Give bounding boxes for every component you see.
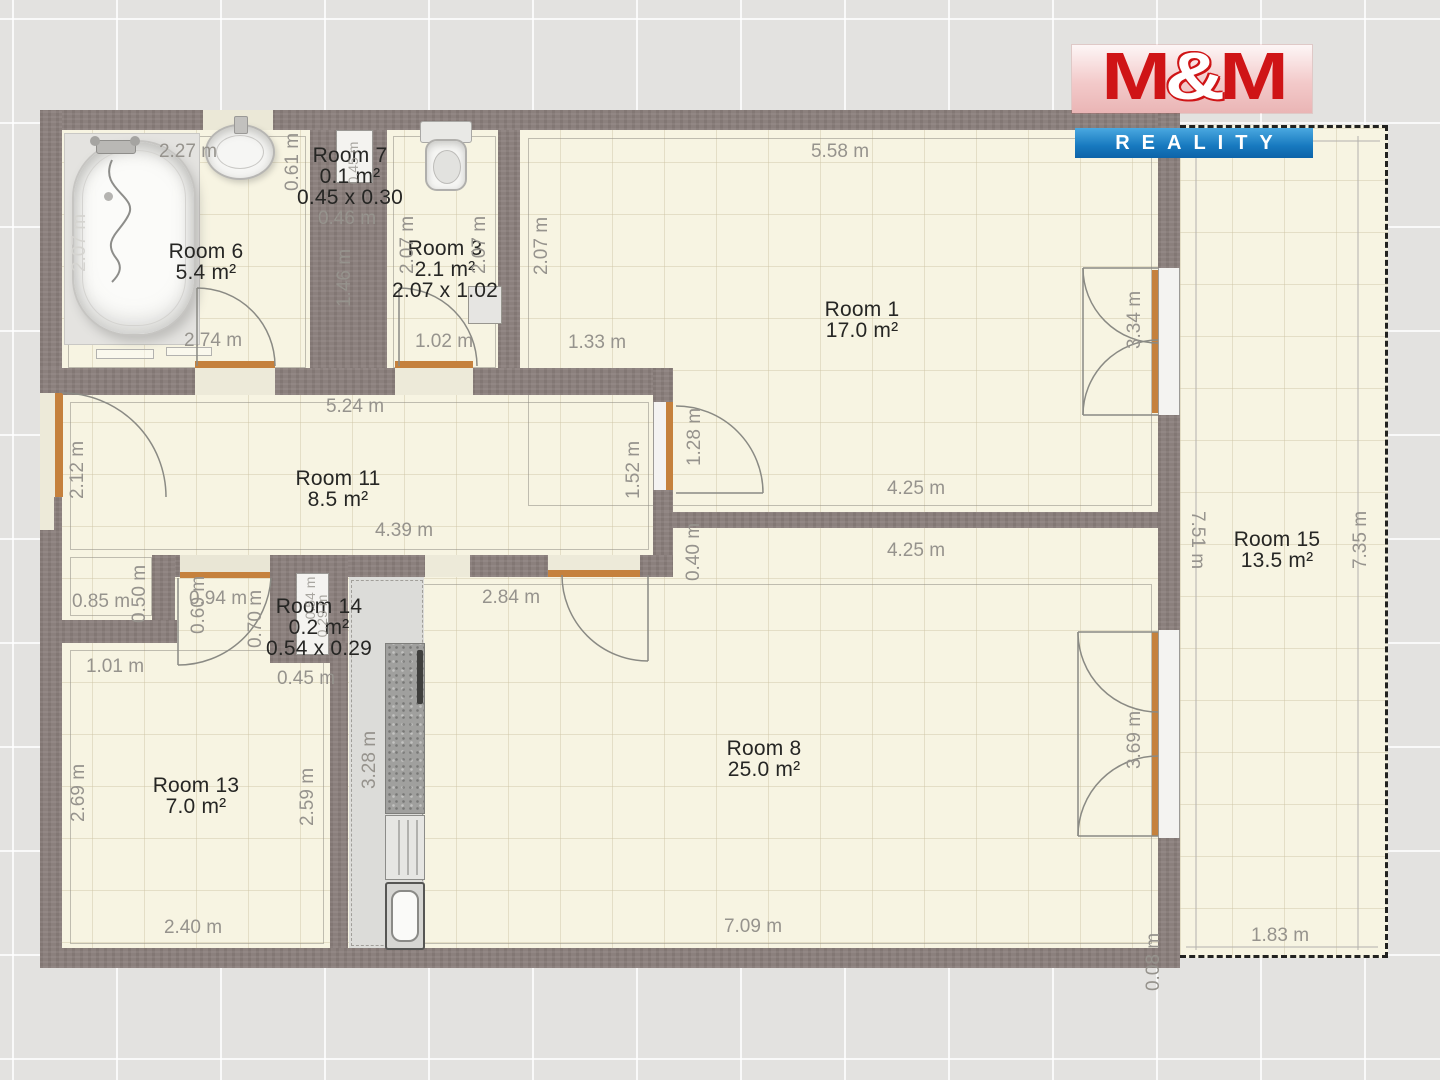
room-15-label: 13.5 m² — [1241, 549, 1314, 573]
dimension-label: 3.34 m — [1124, 291, 1146, 349]
dimension-label: 7.35 m — [1350, 511, 1372, 569]
dimension-label: 2.84 m — [482, 587, 540, 609]
dimension-label: 2.59 m — [297, 768, 319, 826]
dimension-label: 2.74 m — [184, 330, 242, 352]
room-14-label: 0.54 x 0.29 — [266, 637, 372, 661]
dimension-label: 1.46 m — [334, 249, 356, 307]
dimension-label: 0.61 m — [282, 133, 304, 191]
dimension-label: 2.07 m — [469, 216, 491, 274]
room-1-label: 17.0 m² — [826, 319, 899, 343]
room-13-label: 7.0 m² — [166, 795, 227, 819]
dimension-label: 0.60 m — [188, 576, 210, 634]
logo-m-left: M — [1101, 45, 1165, 113]
dimension-label: 2.12 m — [67, 441, 89, 499]
dimension-label: 1.28 m — [684, 408, 706, 466]
floor-plan: Room 65.4 m²Room 70.1 m²0.45 x 0.30Room … — [0, 0, 1440, 1080]
dimension-label: 1.83 m — [1251, 925, 1309, 947]
dimension-label: 0.70 m — [245, 590, 267, 648]
dimension-label: 2.07 m — [69, 214, 91, 272]
dimension-label: 5.24 m — [326, 396, 384, 418]
room-11-label: 8.5 m² — [308, 488, 369, 512]
dimension-label: 4.25 m — [887, 540, 945, 562]
dimension-label: 7.09 m — [724, 916, 782, 938]
dimension-label: 0.45 m — [277, 668, 335, 690]
shower-hose — [109, 160, 130, 282]
room-7-label: 0.45 x 0.30 — [297, 186, 403, 210]
dimension-label: 1.02 m — [415, 331, 473, 353]
dimension-label: 2.27 m — [159, 141, 217, 163]
dimension-label: 2.07 m — [397, 216, 419, 274]
dimension-label: 0.85 m — [72, 591, 130, 613]
dimension-label: 0.46 m — [318, 208, 376, 230]
dimension-label: 0.45 m — [345, 142, 361, 185]
dimension-label: 0.50 m — [129, 565, 151, 623]
dimension-label: 5.58 m — [811, 141, 869, 163]
dimension-label: 0.40 m — [683, 523, 705, 581]
dimension-label: 2.69 m — [68, 764, 90, 822]
dimension-label: 0.29 m — [314, 595, 330, 638]
room-6-label: 5.4 m² — [176, 261, 237, 285]
dimension-label: 3.69 m — [1124, 711, 1146, 769]
dimension-label: 3.28 m — [359, 731, 381, 789]
dimension-label: 2.40 m — [164, 917, 222, 939]
dimension-label: 2.07 m — [531, 217, 553, 275]
room-8-label: 25.0 m² — [728, 758, 801, 782]
room-3-label: 2.07 x 1.02 — [392, 279, 498, 303]
dimension-label: 4.25 m — [887, 478, 945, 500]
dimension-label: 4.39 m — [375, 520, 433, 542]
mm-reality-logo: M&M — [1072, 45, 1312, 113]
dimension-label: 1.01 m — [86, 656, 144, 678]
dimension-label: 7.51 m — [1186, 511, 1208, 569]
dimension-label: 0.08 m — [1143, 933, 1165, 991]
logo-reality-bar: REALITY — [1075, 128, 1313, 158]
dimension-label: 1.33 m — [568, 332, 626, 354]
logo-m-right: M — [1219, 45, 1283, 113]
logo-ampersand: & — [1165, 45, 1219, 113]
dimension-label: 1.52 m — [623, 441, 645, 499]
